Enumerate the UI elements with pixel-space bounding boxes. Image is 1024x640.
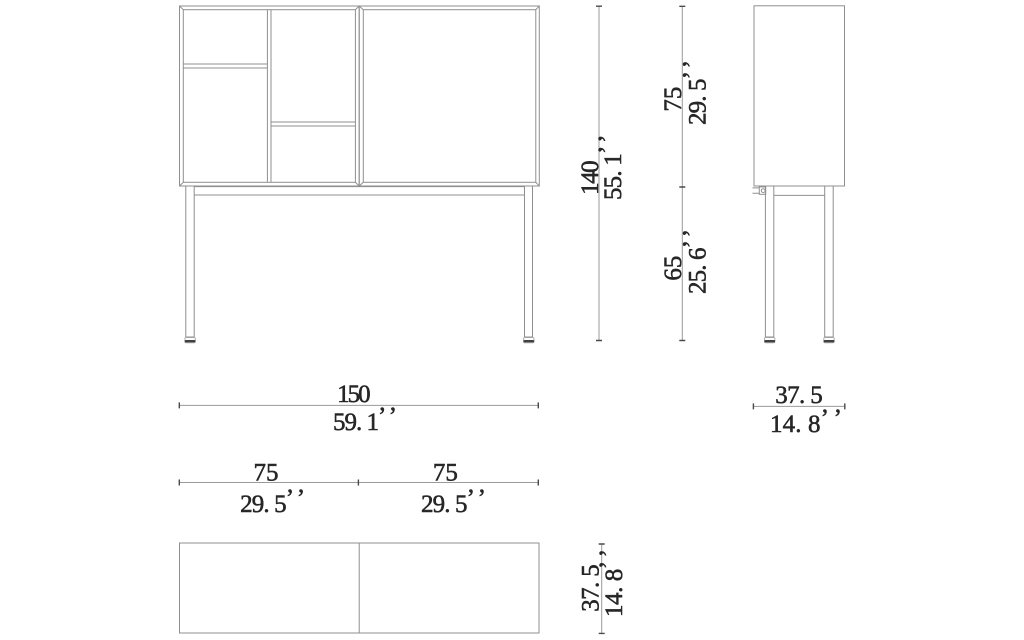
svg-text:75: 75 [254, 459, 279, 486]
svg-text:37. 5: 37. 5 [775, 382, 823, 409]
svg-text:75: 75 [433, 459, 458, 486]
svg-text:65: 65 [660, 256, 687, 281]
svg-text:75: 75 [660, 87, 687, 112]
svg-text:150: 150 [337, 381, 371, 408]
